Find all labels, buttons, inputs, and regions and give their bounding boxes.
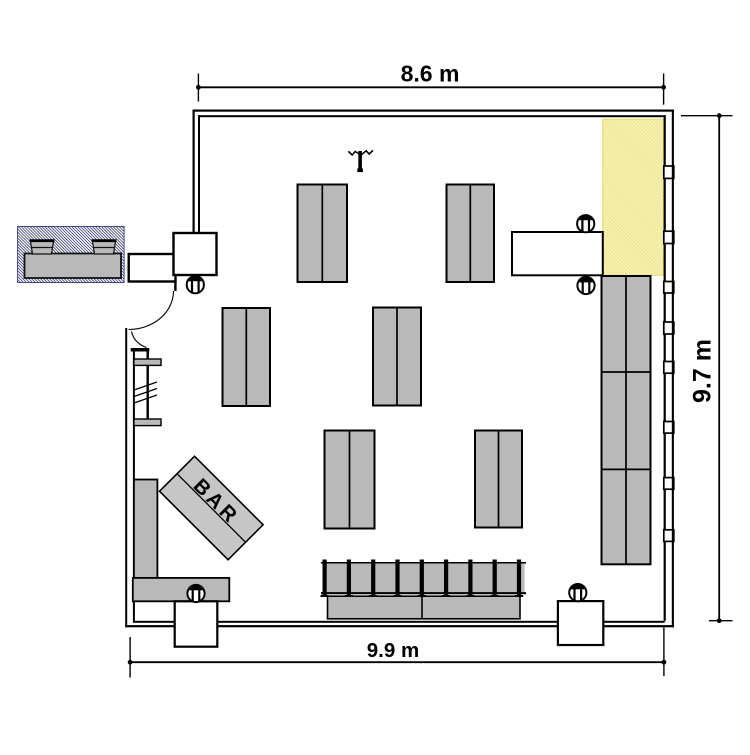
svg-text:8.6 m: 8.6 m <box>401 61 460 87</box>
svg-text:9.7 m: 9.7 m <box>689 339 717 403</box>
svg-text:9.9 m: 9.9 m <box>367 639 419 662</box>
